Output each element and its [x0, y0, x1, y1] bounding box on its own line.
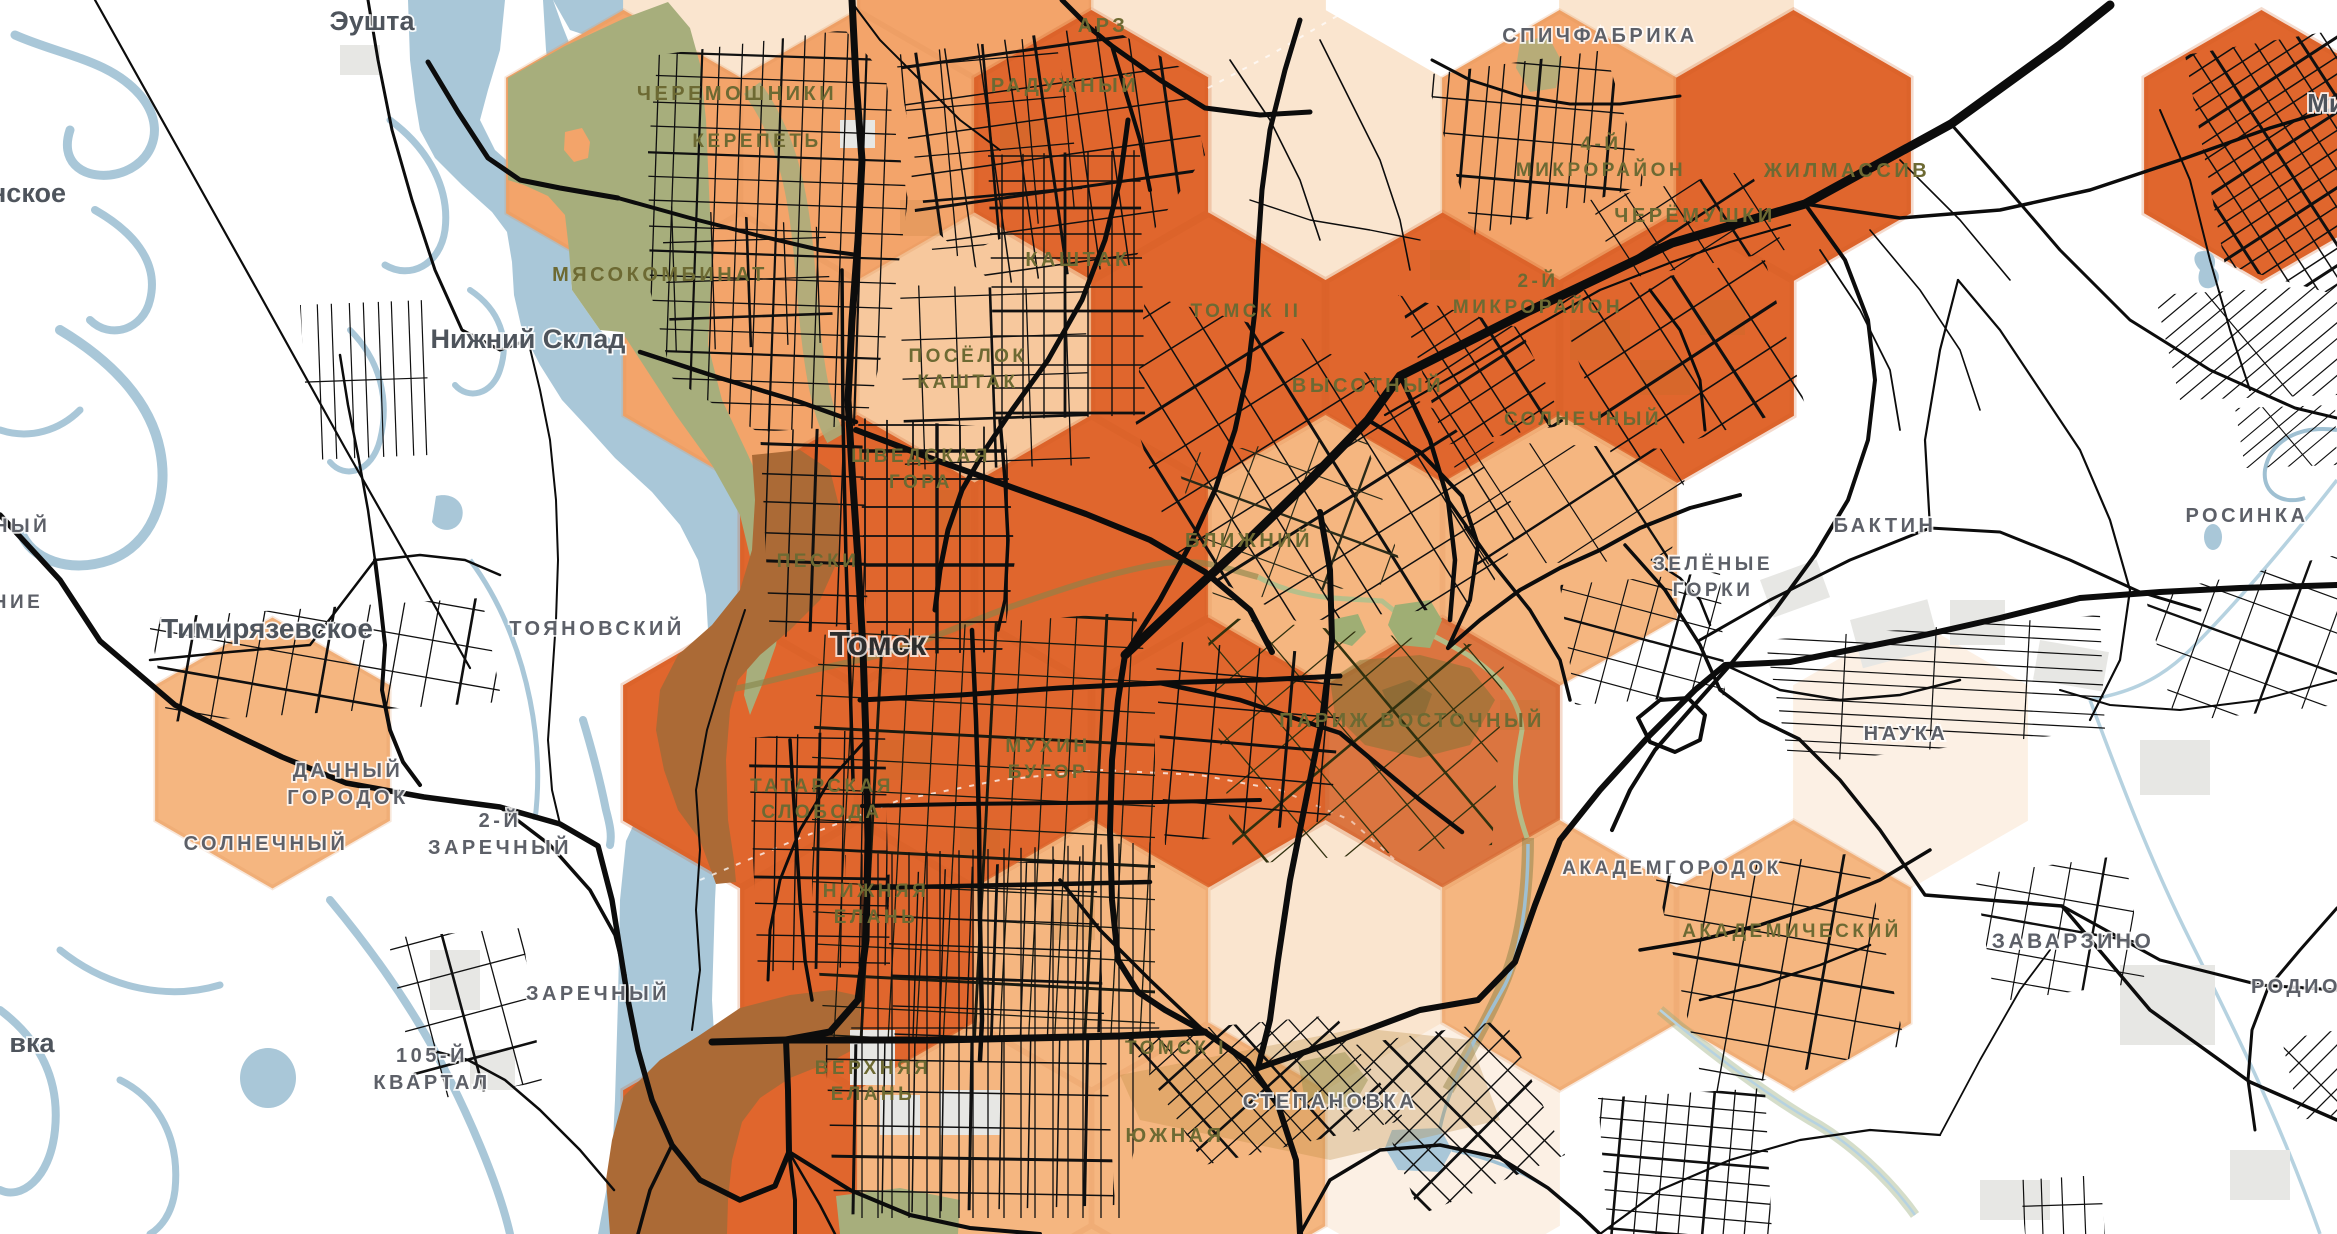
svg-text:ЕЛАНЬ: ЕЛАНЬ [834, 907, 919, 928]
svg-text:ЗАВАРЗИНО: ЗАВАРЗИНО [1992, 930, 2155, 953]
svg-text:МУХИН: МУХИН [1005, 736, 1090, 757]
svg-text:БАКТИН: БАКТИН [1834, 515, 1937, 537]
svg-text:ЕЛАНЬ: ЕЛАНЬ [831, 1084, 916, 1105]
svg-text:ГОРА: ГОРА [889, 472, 953, 493]
svg-text:нское: нское [0, 178, 66, 208]
svg-text:НАУКА: НАУКА [1864, 723, 1949, 745]
svg-text:ТОМСК I: ТОМСК I [1125, 1038, 1227, 1059]
svg-text:2-Й: 2-Й [479, 808, 522, 832]
svg-text:СОЛНЕЧНЫЙ: СОЛНЕЧНЫЙ [1504, 408, 1662, 430]
svg-text:2-Й: 2-Й [1517, 270, 1558, 292]
svg-text:105-Й: 105-Й [396, 1043, 468, 1067]
svg-text:МИКРОРАЙОН: МИКРОРАЙОН [1516, 159, 1686, 181]
svg-text:НИЕ: НИЕ [0, 592, 43, 613]
svg-text:МЯСОКОМБИНАТ: МЯСОКОМБИНАТ [552, 264, 768, 286]
svg-text:ГОРОДОК: ГОРОДОК [287, 787, 409, 809]
svg-text:СЛОБОДА: СЛОБОДА [761, 802, 882, 823]
svg-text:РАДУЖНЫЙ: РАДУЖНЫЙ [991, 73, 1139, 97]
svg-text:ПОСЁЛОК: ПОСЁЛОК [908, 346, 1027, 367]
svg-text:НИЖНЯЯ: НИЖНЯЯ [823, 881, 930, 902]
svg-text:вка: вка [9, 1028, 55, 1058]
svg-text:РОДИОН: РОДИОН [2251, 976, 2337, 998]
svg-text:АКАДЕМИЧЕСКИЙ: АКАДЕМИЧЕСКИЙ [1682, 920, 1902, 942]
svg-text:ЧЕРЕМОШНИКИ: ЧЕРЕМОШНИКИ [637, 83, 837, 105]
svg-text:ВЫСОТНЫЙ: ВЫСОТНЫЙ [1292, 373, 1444, 397]
svg-text:НЫЙ: НЫЙ [0, 515, 50, 537]
svg-text:ВЕРХНЯЯ: ВЕРХНЯЯ [815, 1058, 932, 1079]
svg-text:ЗАРЕЧНЫЙ: ЗАРЕЧНЫЙ [526, 981, 670, 1005]
svg-text:Томск: Томск [830, 625, 927, 662]
svg-text:ЗАРЕЧНЫЙ: ЗАРЕЧНЫЙ [428, 835, 572, 859]
svg-text:Тимирязевское: Тимирязевское [161, 613, 373, 644]
svg-text:Эушта: Эушта [330, 6, 416, 36]
svg-text:ЧЕРЁМУШКИ: ЧЕРЁМУШКИ [1614, 204, 1775, 227]
svg-text:ЖИЛМАССИВ: ЖИЛМАССИВ [1763, 160, 1930, 182]
svg-text:СПИЧФАБРИКА: СПИЧФАБРИКА [1502, 25, 1698, 47]
svg-text:КВАРТАЛ: КВАРТАЛ [373, 1072, 490, 1094]
svg-text:БУГОР: БУГОР [1008, 762, 1088, 783]
svg-text:СОЛНЕЧНЫЙ: СОЛНЕЧНЫЙ [184, 831, 349, 855]
svg-text:ТАТАРСКАЯ: ТАТАРСКАЯ [750, 776, 894, 797]
svg-text:БЛИЖНИЙ: БЛИЖНИЙ [1185, 528, 1313, 552]
svg-text:ТОМСК II: ТОМСК II [1191, 301, 1302, 322]
svg-text:МИКРОРАЙОН: МИКРОРАЙОН [1453, 296, 1623, 318]
svg-text:КАШТАК: КАШТАК [917, 372, 1018, 393]
svg-text:ПАРИЖ ВОСТОЧНЫЙ: ПАРИЖ ВОСТОЧНЫЙ [1279, 708, 1545, 732]
svg-text:ЮЖНАЯ: ЮЖНАЯ [1126, 1125, 1225, 1147]
svg-text:КЕРЕПЕТЬ: КЕРЕПЕТЬ [692, 131, 821, 152]
svg-text:КАШТАК: КАШТАК [1025, 249, 1130, 271]
svg-text:ТОЯНОВСКИЙ: ТОЯНОВСКИЙ [509, 616, 684, 640]
svg-text:АКАДЕМГОРОДОК: АКАДЕМГОРОДОК [1562, 858, 1781, 879]
svg-text:ГОРКИ: ГОРКИ [1673, 580, 1754, 601]
svg-text:СТЕПАНОВКА: СТЕПАНОВКА [1243, 1091, 1417, 1113]
svg-text:РОСИНКА: РОСИНКА [2185, 505, 2308, 527]
svg-text:ПЕСКИ: ПЕСКИ [777, 551, 860, 572]
svg-text:ДАЧНЫЙ: ДАЧНЫЙ [293, 758, 404, 782]
svg-text:4-Й: 4-Й [1580, 133, 1621, 155]
svg-text:Нижний Склад: Нижний Склад [431, 324, 626, 354]
svg-text:ЗЕЛЁНЫЕ: ЗЕЛЁНЫЕ [1653, 554, 1773, 575]
svg-text:ШВЕДСКАЯ: ШВЕДСКАЯ [851, 446, 991, 467]
svg-text:Ми: Ми [2307, 88, 2337, 118]
svg-text:АРЗ: АРЗ [1078, 15, 1129, 37]
